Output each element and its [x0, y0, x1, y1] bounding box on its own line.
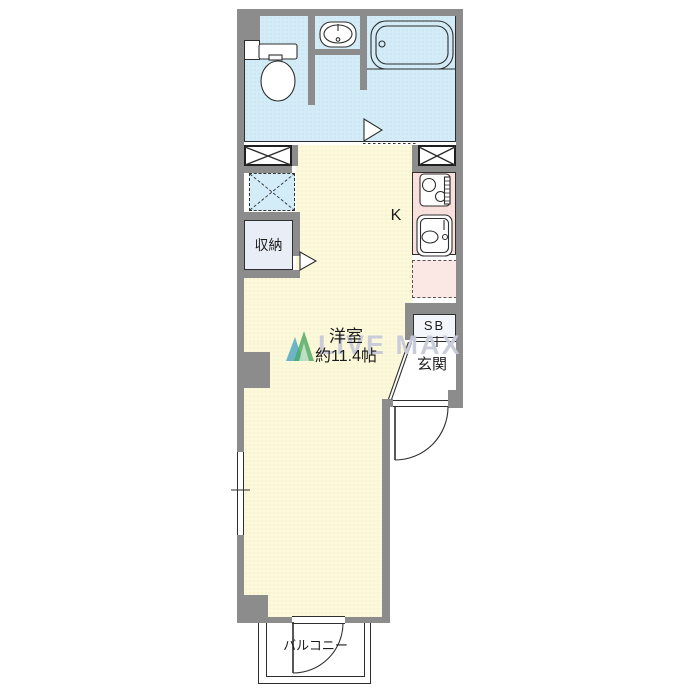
wall-shoebox-top [405, 303, 463, 314]
balcony-door-opening [292, 616, 345, 624]
main-room-floor [244, 277, 412, 303]
sanitary-section-floor [244, 15, 456, 142]
entrance-door-arc [395, 407, 448, 460]
pipe-shaft-small [244, 40, 260, 60]
wall [412, 166, 456, 172]
wall [237, 166, 292, 173]
fridge-space [412, 260, 457, 298]
room-name: 洋室 [296, 327, 396, 347]
window-left [237, 452, 244, 535]
wall-pillar [244, 352, 270, 388]
wall [237, 9, 244, 452]
wall [237, 535, 244, 623]
wall-entrance-corner [448, 390, 463, 408]
wall [382, 399, 390, 623]
wall-bottom [237, 617, 292, 623]
entrance-threshold [393, 400, 448, 407]
wall-closet-bottom [237, 270, 300, 278]
balcony-label: バルコニー [266, 638, 365, 654]
wall-toilet-partition [308, 15, 315, 105]
closet-label: 収納 [244, 237, 293, 254]
shoebox-label: SB [413, 318, 456, 334]
main-room-label: 洋室 約11.4帖 [296, 327, 396, 367]
floor-plan: LIVE MAX 洋室 約11.4帖 K 収納 SB 玄関 バルコニー [0, 0, 700, 700]
washer-space [249, 173, 295, 211]
wall-bottom [345, 617, 390, 623]
pipe-shaft-left [244, 145, 292, 166]
main-room-floor [244, 399, 382, 617]
wall [237, 9, 463, 16]
entrance-label: 玄関 [406, 356, 458, 374]
wall-under-sink [308, 49, 360, 55]
wall-closet-right [293, 212, 300, 256]
pipe-shaft-right [418, 145, 456, 166]
wall-bath-partition [360, 15, 367, 90]
room-size: 約11.4帖 [296, 347, 396, 366]
wall-closet-top [237, 212, 300, 220]
wall [292, 145, 298, 166]
kitchen-counter [412, 172, 456, 255]
wall-corner-block [244, 15, 260, 40]
kitchen-label: K [385, 206, 407, 225]
